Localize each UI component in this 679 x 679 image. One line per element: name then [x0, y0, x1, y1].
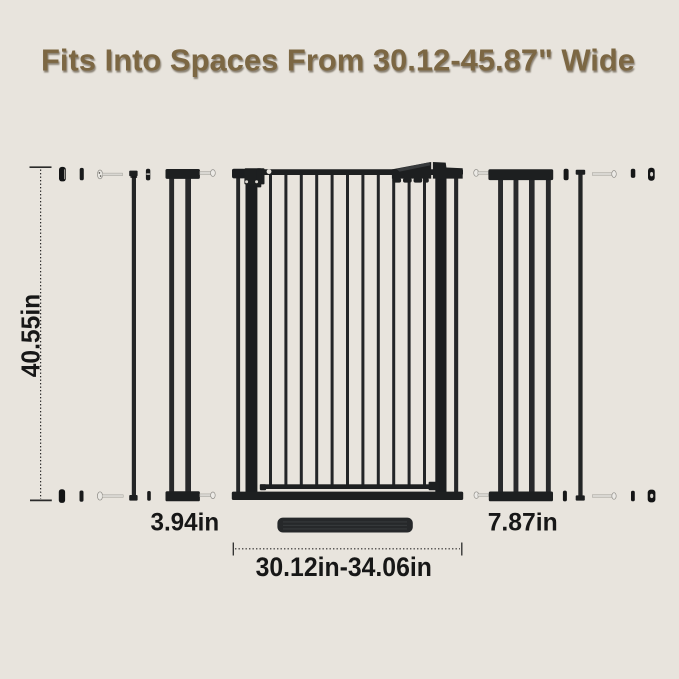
svg-text:3.94in: 3.94in: [151, 508, 220, 536]
svg-text:Fits Into Spaces From 30.12-45: Fits Into Spaces From 30.12-45.87" Wide: [41, 44, 635, 78]
svg-text:30.12in-34.06in: 30.12in-34.06in: [256, 552, 432, 582]
svg-text:40.55in: 40.55in: [16, 294, 46, 378]
svg-text:7.87in: 7.87in: [488, 508, 558, 536]
